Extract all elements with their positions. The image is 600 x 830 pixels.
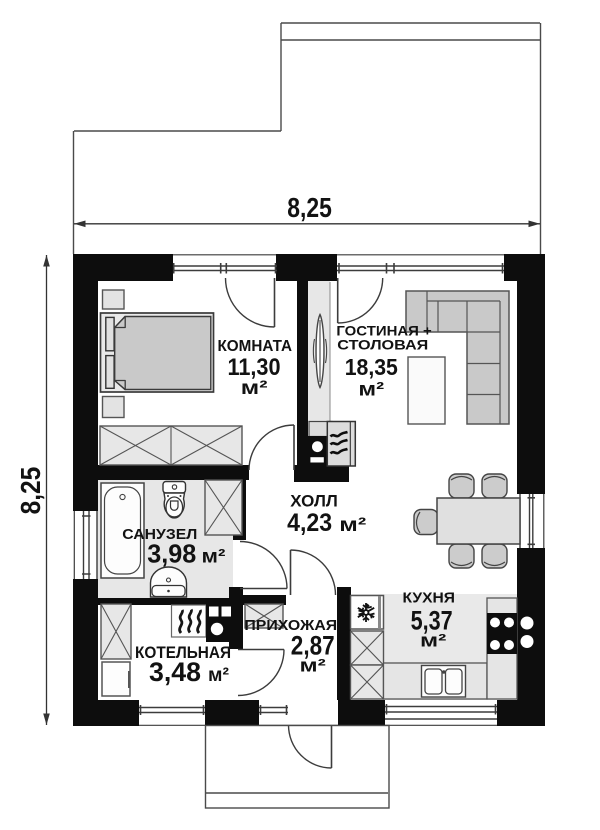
svg-text:КОМНАТА: КОМНАТА: [218, 338, 293, 355]
svg-text:м²: м²: [300, 656, 326, 676]
svg-text:4,23: 4,23: [287, 509, 332, 537]
svg-text:м²: м²: [339, 515, 366, 536]
svg-text:м²: м²: [241, 377, 268, 399]
svg-text:КУХНЯ: КУХНЯ: [403, 591, 456, 607]
svg-text:3,98: 3,98: [147, 539, 196, 569]
svg-text:3,48: 3,48: [149, 657, 201, 687]
svg-text:8,25: 8,25: [287, 192, 332, 223]
svg-text:м²: м²: [202, 547, 226, 568]
svg-text:м²: м²: [208, 665, 229, 686]
svg-text:ХОЛЛ: ХОЛЛ: [290, 492, 338, 510]
svg-text:СТОЛОВАЯ: СТОЛОВАЯ: [337, 336, 428, 352]
svg-text:18,35: 18,35: [345, 354, 398, 380]
svg-text:м²: м²: [420, 630, 446, 650]
svg-text:м²: м²: [358, 378, 384, 400]
svg-text:8,25: 8,25: [15, 467, 46, 515]
